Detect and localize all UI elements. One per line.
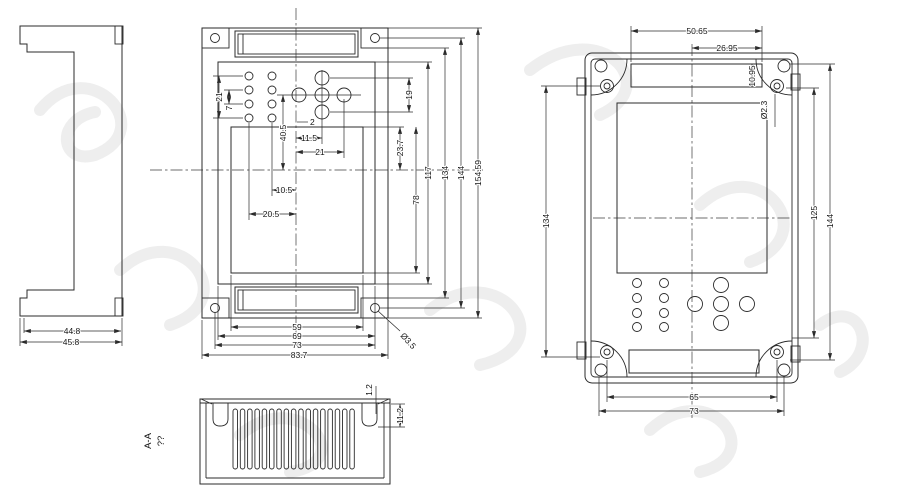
dim-label: 65 xyxy=(689,392,699,402)
screw-boss-section xyxy=(213,403,228,426)
rear-panel-view: 50.65 26.95 10.95 Ø2.3 134 125 xyxy=(541,26,835,418)
display-window xyxy=(231,127,363,273)
dim-label: 78 xyxy=(411,195,421,205)
dim-label: 40.5 xyxy=(278,124,288,141)
bottom-vent-slot-inner xyxy=(238,290,355,310)
dim-slot-center-offset: 26.95 xyxy=(692,43,762,53)
dim-label: 19 xyxy=(404,90,414,100)
fin-slot xyxy=(328,409,333,469)
corner-hole xyxy=(778,60,790,72)
dim-label: 144 xyxy=(456,166,466,180)
side-profile-outline xyxy=(20,26,122,316)
dim-screw-hole-dia: Ø3.5 xyxy=(378,311,418,351)
corner-boss-arc xyxy=(591,341,627,377)
fin-slot xyxy=(343,409,348,469)
dim-screw-pitch-h: 65 xyxy=(607,392,777,402)
bottom-vent-slot xyxy=(235,287,358,313)
dim-lid-height: 125 xyxy=(809,88,819,338)
keypad-hole xyxy=(633,279,642,288)
top-vent-slot xyxy=(235,31,358,57)
screw-hole-ring xyxy=(601,80,614,93)
dim-label: 21 xyxy=(315,147,325,157)
dim-side-outer-width: 45.8 xyxy=(20,337,122,347)
keypad-hole xyxy=(660,294,669,303)
top-slot xyxy=(631,64,762,87)
keypad-hole xyxy=(245,72,253,80)
dim-label: 125 xyxy=(809,206,819,220)
dim-keypad-pitch: 7 xyxy=(224,90,243,110)
drawing-canvas: 44.8 45.8 xyxy=(0,0,900,500)
dim-label: Ø2.3 xyxy=(759,101,769,120)
mount-ear xyxy=(202,28,229,48)
dim-label: 50.65 xyxy=(686,26,708,36)
dim-label: Ø3.5 xyxy=(399,331,419,352)
dim-screw-pitch-v: 144 xyxy=(456,38,466,308)
side-profile-view: 44.8 45.8 xyxy=(20,26,123,347)
keypad-hole xyxy=(245,114,253,122)
dim-label: 10.95 xyxy=(747,65,757,87)
dim-nav-height: 19 xyxy=(404,78,414,112)
dim-body-height: 134 xyxy=(541,86,551,357)
section-view-aa: 1.2 11.2 A-A ?? xyxy=(143,384,405,484)
keypad-hole xyxy=(268,114,276,122)
screw-hole xyxy=(604,83,610,89)
technical-drawing: 44.8 45.8 xyxy=(0,0,900,500)
top-vent-slot-inner xyxy=(238,34,355,54)
dim-screw-pitch-h: 73 xyxy=(215,340,375,350)
dim-slot-width: 50.65 xyxy=(631,26,762,36)
dim-slot-height: 10.95 xyxy=(747,64,757,87)
section-label-note: ?? xyxy=(156,436,167,447)
dim-label: 45.8 xyxy=(63,337,80,347)
dim-label: 154.59 xyxy=(473,160,483,186)
keypad-hole xyxy=(268,100,276,108)
corner-hole xyxy=(595,60,607,72)
dim-label: 7 xyxy=(224,105,234,110)
dim-body-height: 134 xyxy=(440,48,450,298)
section-label-text: A-A xyxy=(143,432,154,449)
fin-slot xyxy=(335,409,340,469)
dim-overall-height: 154.59 xyxy=(473,28,483,318)
nav-button-hole xyxy=(714,297,729,312)
screw-hole-ring xyxy=(771,80,784,93)
dim-label: 2 xyxy=(310,117,315,127)
dim-keypad-col2: 10.5 xyxy=(272,185,296,195)
nav-button-hole xyxy=(740,297,755,312)
screw-hole xyxy=(774,349,780,355)
screw-hole-ring xyxy=(601,346,614,359)
keypad-hole xyxy=(633,294,642,303)
dim-label: 21 xyxy=(214,92,224,102)
fin-slot xyxy=(350,409,355,469)
bottom-slot xyxy=(629,350,759,373)
dim-label: 11.2 xyxy=(395,408,405,424)
dim-overall-width: 83.7 xyxy=(202,350,388,360)
screw-hole xyxy=(774,83,780,89)
dim-nav-offset: 2 xyxy=(297,117,315,127)
keypad-hole xyxy=(660,279,669,288)
dim-label: 73 xyxy=(292,340,302,350)
dim-label: 1.2 xyxy=(364,384,374,396)
dim-label: 10.5 xyxy=(276,185,293,195)
dim-label: 117 xyxy=(423,166,433,180)
dim-keypad-col1: 20.5 xyxy=(249,209,296,219)
keypad-hole xyxy=(245,100,253,108)
corner-hole xyxy=(778,364,790,376)
dim-nav-col-mid: 11.5 xyxy=(296,133,322,143)
dim-label: 11.5 xyxy=(301,133,317,143)
fin-slot xyxy=(248,409,253,469)
dim-nav-col-right: 21 xyxy=(296,147,344,157)
corner-hole xyxy=(595,364,607,376)
screw-boss-section xyxy=(362,403,377,426)
keypad-hole xyxy=(268,72,276,80)
dim-nav-drop: 40.5 xyxy=(278,95,288,170)
dim-label: 144 xyxy=(825,214,835,228)
mount-hole xyxy=(371,34,380,43)
nav-button-hole xyxy=(714,316,729,331)
keypad-hole xyxy=(660,323,669,332)
keypad-hole xyxy=(633,323,642,332)
keypad-hole xyxy=(633,309,642,318)
dim-screw-pitch-h-outer: 73 xyxy=(599,406,784,416)
keypad-hole xyxy=(245,86,253,94)
dim-label: 73 xyxy=(689,406,699,416)
dim-panel-height: 117 xyxy=(423,62,433,284)
dim-window-height: 78 xyxy=(411,127,421,273)
dim-boss-depth: 11.2 xyxy=(378,404,405,427)
section-label: A-A ?? xyxy=(143,432,167,449)
nav-button-hole xyxy=(714,278,729,293)
keypad-hole xyxy=(660,309,669,318)
screw-hole-ring xyxy=(771,346,784,359)
keypad-hole xyxy=(268,86,276,94)
dim-label: 134 xyxy=(440,166,450,180)
mount-hole xyxy=(211,34,220,43)
dim-label: 83.7 xyxy=(291,350,308,360)
dim-label: 134 xyxy=(541,214,551,228)
dim-window-offset: 23.7 xyxy=(395,127,405,170)
front-body-outline xyxy=(202,28,388,318)
dim-label: 44.8 xyxy=(64,326,81,336)
screw-hole xyxy=(604,349,610,355)
nav-button-hole xyxy=(688,297,703,312)
watermark xyxy=(40,50,863,472)
dim-label: 20.5 xyxy=(263,209,280,219)
dim-label: 26.95 xyxy=(716,43,738,53)
dim-label: 23.7 xyxy=(395,139,405,156)
